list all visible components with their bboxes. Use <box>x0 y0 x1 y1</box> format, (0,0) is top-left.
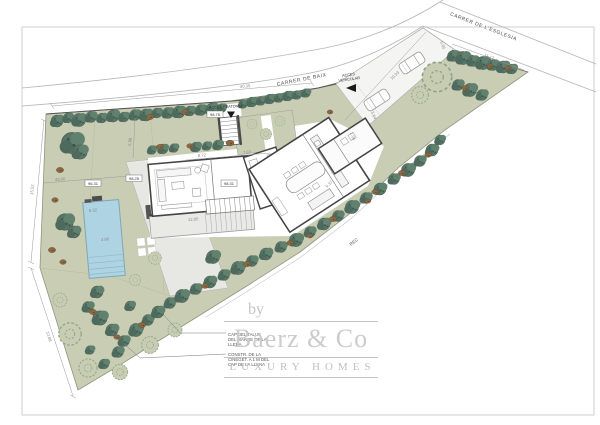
watermark-tagline: LUXURY HOMES <box>224 358 378 377</box>
watermark: by Baerz & Co LUXURY HOMES <box>224 302 378 378</box>
shrub-icon <box>425 153 431 158</box>
sketch-tree-icon <box>260 128 271 139</box>
shrub-icon <box>56 167 63 172</box>
shrub-icon <box>398 170 405 175</box>
watermark-rule <box>224 377 378 378</box>
level-terrace: 98.25 <box>126 175 142 182</box>
shrub-icon <box>48 247 55 252</box>
pool-wall <box>92 196 102 202</box>
dim-7-63: 7.63 <box>243 149 252 155</box>
sketch-tree-icon <box>275 116 285 126</box>
shrub-icon <box>182 110 188 115</box>
dim-8-72: 8.72 <box>198 152 207 158</box>
shrub-icon <box>462 86 468 91</box>
site-plan-sheet: 40.35 11.12 10.93 5.05 3.64 2.06 15.52 1… <box>0 0 600 425</box>
sketch-tree-icon <box>112 364 127 379</box>
shrub-icon <box>287 241 293 246</box>
sketch-tree-icon <box>129 274 140 285</box>
shrub-icon <box>487 64 493 68</box>
svg-text:98.31: 98.31 <box>224 181 235 186</box>
sketch-tree-icon <box>79 359 97 377</box>
dim-left-boundary: 15.52 <box>29 184 35 196</box>
shrub-icon <box>187 144 193 149</box>
svg-text:96.31: 96.31 <box>88 181 99 186</box>
waterway-label: REC <box>349 237 360 247</box>
shrub-icon <box>52 198 58 203</box>
shrub-icon <box>138 322 145 327</box>
sketch-tree-icon <box>422 62 451 91</box>
sketch-tree-icon <box>168 323 182 337</box>
shrub-icon <box>327 110 333 114</box>
watermark-brand: Baerz & Co <box>224 322 378 357</box>
sketch-tree-icon <box>53 293 67 307</box>
dim-pool-width: 3.86 <box>101 236 110 242</box>
shrub-icon <box>505 66 511 70</box>
sketch-tree-icon <box>247 119 257 129</box>
shrub-icon <box>146 114 153 119</box>
shrub-icon <box>365 199 371 203</box>
sketch-tree-icon <box>149 252 162 265</box>
sketch-tree-icon <box>142 337 159 354</box>
svg-text:98.25: 98.25 <box>129 176 140 181</box>
dim-5-98: 5.98 <box>127 137 133 146</box>
shrub-icon <box>307 234 313 238</box>
shrub-icon <box>243 261 250 266</box>
dim-12-85: 12.85 <box>188 216 199 222</box>
shrub-icon <box>60 260 66 265</box>
shrub-icon <box>89 309 96 314</box>
level-hall: 98.31 <box>221 180 237 187</box>
shrub-icon <box>114 335 120 340</box>
sketch-tree-icon <box>412 87 429 104</box>
level-poolside: 96.31 <box>85 180 101 187</box>
sketch-tree-icon <box>59 323 81 345</box>
shrub-icon <box>202 284 208 289</box>
tree-icon <box>414 155 427 166</box>
watermark-by: by <box>224 302 378 318</box>
dim-top-boundary: 40.35 <box>240 83 252 89</box>
dim-pool-length: 8.22 <box>89 207 98 213</box>
shrub-icon <box>156 144 163 149</box>
svg-text:98.75: 98.75 <box>210 112 221 117</box>
dim-43-00: 43.00 <box>55 176 66 182</box>
level-access: 98.75 <box>207 111 235 118</box>
shrub-icon <box>226 140 234 146</box>
shrub-icon <box>372 190 378 195</box>
